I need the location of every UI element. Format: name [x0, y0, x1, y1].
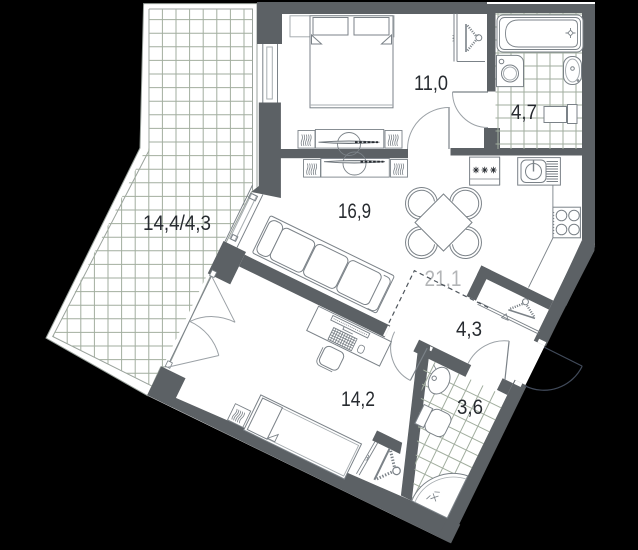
svg-text:4,3: 4,3 [456, 318, 482, 341]
svg-text:14,2: 14,2 [341, 388, 375, 411]
svg-text:14,4/4,3: 14,4/4,3 [143, 212, 211, 235]
svg-text:3,6: 3,6 [457, 396, 483, 419]
svg-text:16,9: 16,9 [338, 200, 371, 223]
svg-text:4,7: 4,7 [511, 101, 537, 124]
svg-text:11,0: 11,0 [414, 72, 448, 95]
